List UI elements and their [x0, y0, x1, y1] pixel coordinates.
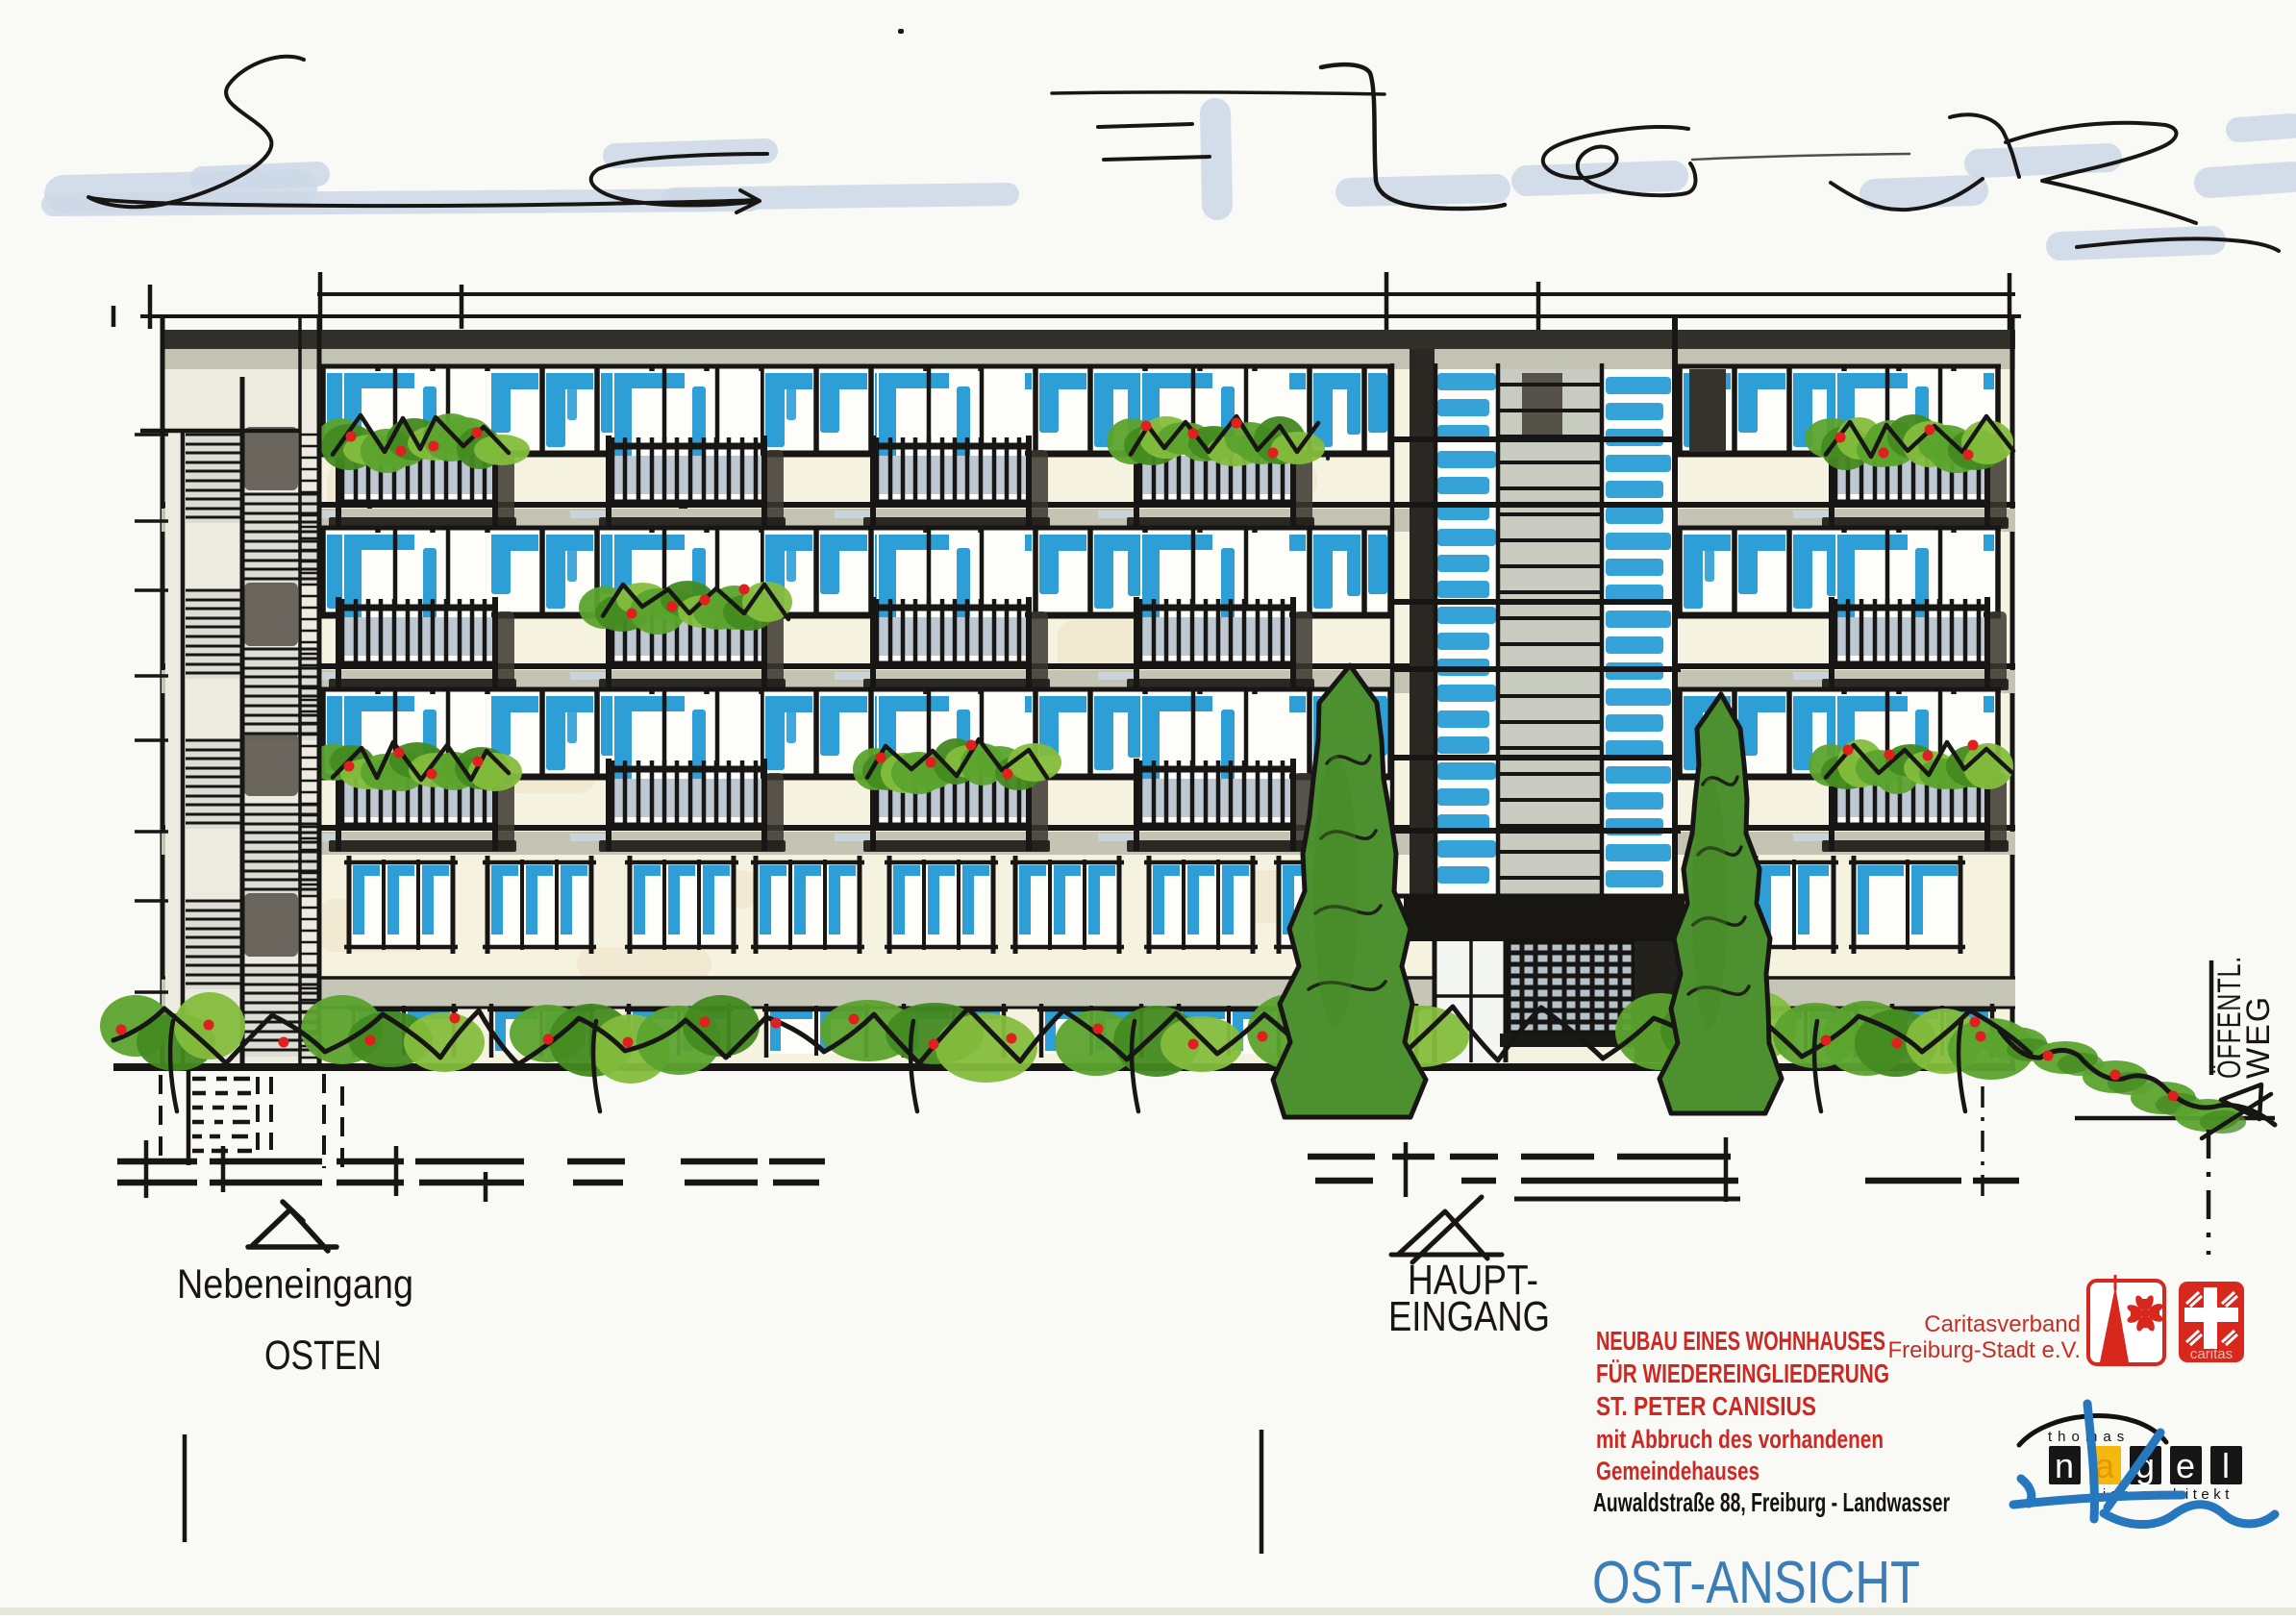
- svg-text:Freiburg-Stadt e.V.: Freiburg-Stadt e.V.: [1887, 1337, 2081, 1363]
- svg-text:l: l: [2222, 1446, 2230, 1485]
- svg-text:FÜR WIEDEREINGLIEDERUNG: FÜR WIEDEREINGLIEDERUNG: [1596, 1358, 1889, 1388]
- svg-text:n: n: [2055, 1446, 2074, 1485]
- svg-text:EINGANG: EINGANG: [1388, 1293, 1550, 1340]
- svg-text:caritas: caritas: [2190, 1346, 2233, 1362]
- svg-text:Auwaldstraße 88, Freiburg - La: Auwaldstraße 88, Freiburg - Landwasser: [1593, 1487, 1950, 1517]
- svg-text:mit Abbruch des vorhandenen: mit Abbruch des vorhandenen: [1596, 1425, 1884, 1454]
- svg-text:WEG: WEG: [2240, 995, 2277, 1079]
- svg-text:Nebeneingang: Nebeneingang: [177, 1261, 413, 1308]
- svg-text:e: e: [2176, 1446, 2195, 1485]
- svg-text:OST-ANSICHT: OST-ANSICHT: [1592, 1550, 1920, 1615]
- svg-text:ST. PETER CANISIUS: ST. PETER CANISIUS: [1596, 1391, 1816, 1421]
- svg-text:OSTEN: OSTEN: [264, 1333, 382, 1379]
- svg-text:Caritasverband: Caritasverband: [1924, 1311, 2081, 1337]
- svg-text:Gemeindehauses: Gemeindehauses: [1596, 1457, 1759, 1485]
- svg-text:NEUBAU EINES WOHNHAUSES: NEUBAU EINES WOHNHAUSES: [1596, 1326, 1885, 1356]
